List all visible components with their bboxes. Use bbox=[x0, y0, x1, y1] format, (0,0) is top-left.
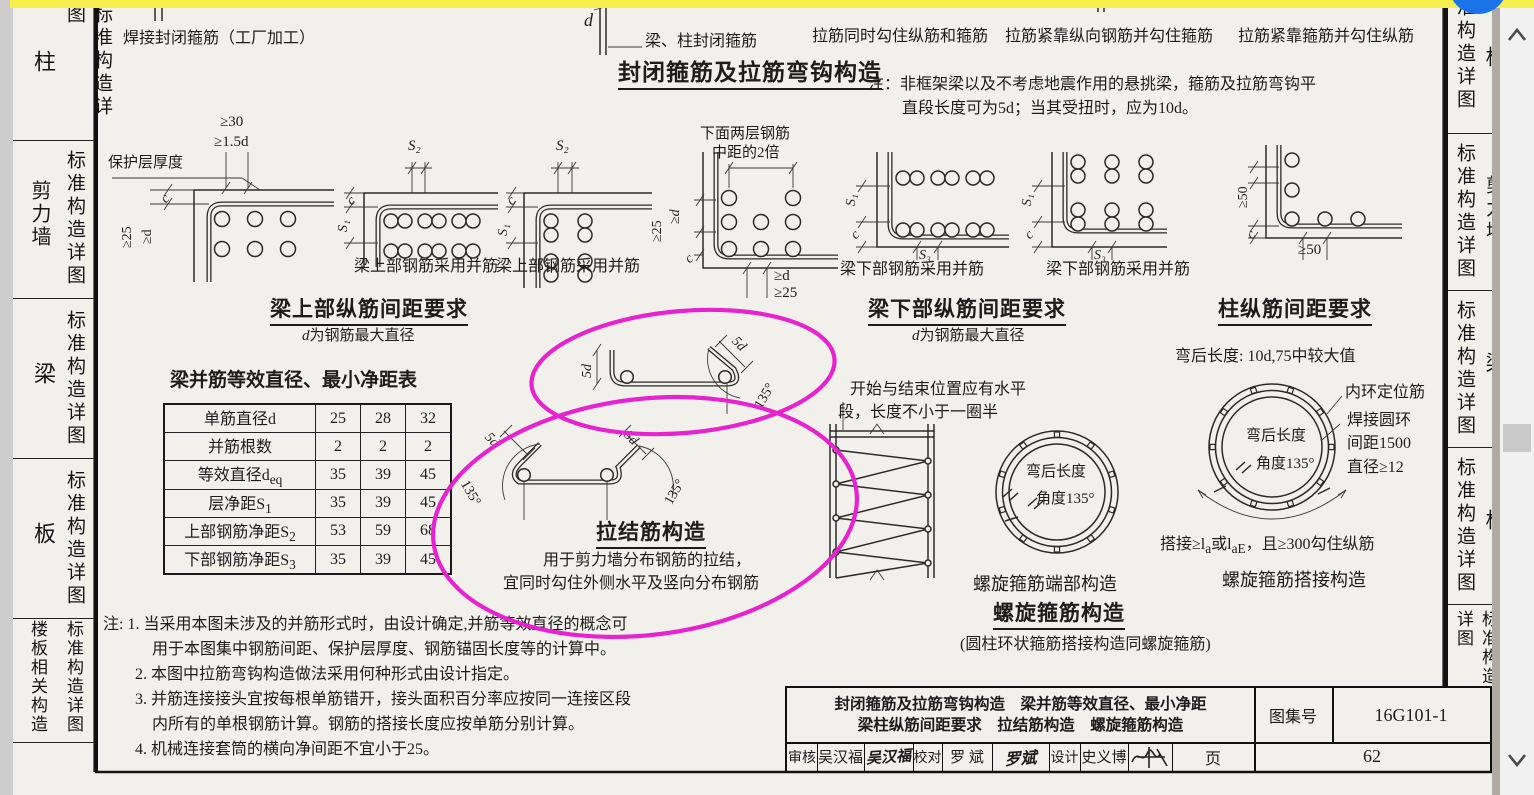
sidebar-category: 板 bbox=[27, 522, 59, 548]
sidebar-label: 标准构造详图 bbox=[1451, 457, 1478, 595]
spiral-end-caption: 螺旋箍筋端部构造 bbox=[973, 574, 1117, 594]
section-title-beam-bottom: 梁下部纵筋间距要求 bbox=[868, 298, 1066, 326]
d-italic: d bbox=[912, 328, 920, 344]
page-number: 62 bbox=[1254, 742, 1490, 771]
tie-title: 拉结筋构造 bbox=[596, 521, 706, 549]
designer-label: 设计 bbox=[1049, 742, 1080, 771]
document-viewer: 焊接封闭箍筋（工厂加工） d 梁、柱封闭箍筋 拉筋同时勾住纵筋和箍筋 拉筋紧靠纵… bbox=[0, 0, 1534, 795]
spiral-subtitle: (圆柱环状箍筋搭接构造同螺旋箍筋) bbox=[960, 636, 1211, 654]
spiral-start-note-2: 段，长度不小于一圈半 bbox=[838, 404, 998, 422]
reviewer-signature: 吴汉福 bbox=[863, 740, 914, 772]
section-subtitle: d为钢筋最大直径 bbox=[912, 328, 1025, 345]
checker-name: 罗 斌 bbox=[942, 742, 992, 771]
designer-signature bbox=[1128, 742, 1172, 771]
sidebar-item-column: 柱 标准构造详图 bbox=[13, 0, 95, 141]
dim-label: ≥25 bbox=[650, 220, 666, 242]
weld-stirrup-label: 焊接封闭箍筋（工厂加工） bbox=[123, 30, 315, 48]
ring-bend-label: 弯后长度 bbox=[1246, 428, 1306, 445]
sidebar-label: 标准构造详图 bbox=[61, 470, 88, 608]
note-line: 内所有的单根钢筋计算。钢筋的搭接长度应按单筋分别计算。 bbox=[152, 716, 584, 734]
d-italic: d bbox=[302, 328, 310, 344]
spiral-start-note-1: 开始与结束位置应有水平 bbox=[850, 381, 1026, 399]
sidebar-label: 标准构造详图 bbox=[61, 310, 88, 448]
sidebar-label: 标准构造详图 bbox=[61, 150, 88, 288]
sidebar-category: 梁 bbox=[27, 362, 59, 388]
diagram-caption: 梁下部钢筋采用并筋 bbox=[1046, 261, 1190, 279]
ring-note-3: 间距1500 bbox=[1347, 435, 1411, 453]
table-row: 单筋直径d252832 bbox=[164, 404, 451, 433]
dim-label: 下面两层钢筋 bbox=[700, 126, 790, 143]
table-row: 上部钢筋净距S2535968 bbox=[164, 517, 451, 545]
bend-rule-label: 弯后长度: 10d,75中较大值 bbox=[1175, 348, 1355, 366]
table-row: 等效直径deq353945 bbox=[164, 461, 451, 489]
sidebar-category: 板 bbox=[1480, 509, 1492, 534]
dim-d-label: d bbox=[584, 10, 593, 30]
dim-label: S₁ bbox=[844, 194, 860, 206]
section-subtitle: d为钢筋最大直径 bbox=[302, 328, 415, 345]
tie-subtitle-1: 用于剪力墙分布钢筋的拉结， bbox=[543, 552, 751, 570]
dim-label: ≥d bbox=[140, 229, 156, 244]
sheet-title-line1: 封闭箍筋及拉筋弯钩构造 梁并筋等效直径、最小净距 bbox=[834, 694, 1206, 715]
table-row: 层净距S1353945 bbox=[164, 489, 451, 517]
chevron-up-icon[interactable] bbox=[1509, 30, 1525, 40]
chevron-down-icon[interactable] bbox=[1509, 755, 1525, 765]
highlight-strip bbox=[10, 0, 1534, 8]
dim-label: 5d bbox=[580, 364, 596, 378]
window-edge-strip bbox=[0, 0, 13, 795]
sidebar-item: 标准构造详图 bbox=[1447, 604, 1492, 686]
subtitle-rest: 为钢筋最大直径 bbox=[920, 328, 1025, 344]
dim-label: S₁ bbox=[496, 224, 512, 236]
subtitle-rest: 为钢筋最大直径 bbox=[310, 328, 415, 344]
sidebar-category: 柱 bbox=[27, 50, 59, 76]
sheet-title-line2: 梁柱纵筋间距要求 拉结筋构造 螺旋箍筋构造 bbox=[858, 715, 1184, 736]
tie-near-stirrup-label: 拉筋紧靠箍筋并勾住纵筋 bbox=[1238, 28, 1414, 46]
sidebar-label: 标准构造详图 bbox=[1451, 143, 1478, 281]
diagram-caption: 梁上部钢筋采用并筋 bbox=[496, 258, 640, 276]
lap-ring-positioning-bars bbox=[1210, 387, 1334, 507]
atlas-number: 16G101-1 bbox=[1332, 688, 1490, 742]
main-heading: 封闭箍筋及拉筋弯钩构造 bbox=[618, 60, 882, 90]
dim-label: 中距的2倍 bbox=[712, 145, 780, 162]
dim-label: S₁ bbox=[336, 220, 352, 232]
dim-label: S₁ bbox=[1020, 194, 1036, 206]
dim-label: ≥d bbox=[774, 268, 790, 285]
dim-label: ≥25 bbox=[774, 285, 797, 302]
spiral-lap-caption: 螺旋箍筋搭接构造 bbox=[1222, 570, 1366, 590]
dim-label: ≥25 bbox=[120, 226, 136, 248]
left-index-strip: 柱 标准构造详图 剪力墙 标准构造详图 梁 标准构造详图 板 标准构造详图 楼板… bbox=[13, 0, 98, 772]
sidebar-category: 梁 bbox=[1480, 352, 1492, 377]
spiral-title: 螺旋箍筋构造 bbox=[993, 602, 1125, 630]
diagram-caption: 梁上部钢筋采用并筋 bbox=[354, 258, 498, 276]
dim-label: ≥d bbox=[668, 209, 684, 224]
heading-note-2: 直段长度可为5d；当其受扭时，应为10d。 bbox=[902, 100, 1198, 118]
reviewer-label: 审核 bbox=[787, 742, 817, 771]
lap-rule-label: 搭接≥la或laE，且≥300勾住纵筋 bbox=[1160, 536, 1374, 557]
equivalent-diameter-table: 单筋直径d252832 并筋根数222 等效直径deq353945 层净距S13… bbox=[163, 403, 452, 575]
note-line: 3. 并筋连接接头宜按每根单筋错开，接头面积百分率应按同一连接区段 bbox=[135, 691, 631, 709]
tie-hook-both-label: 拉筋同时勾住纵筋和箍筋 bbox=[812, 28, 988, 46]
table-row: 并筋根数222 bbox=[164, 433, 451, 461]
heading-note-1: 注：非框架梁以及不考虑地震作用的悬挑梁，箍筋及拉筋弯钩平 bbox=[868, 76, 1316, 94]
ring-bend-label: 弯后长度 bbox=[1026, 464, 1086, 481]
note-line: 2. 本图中拉筋弯钩构造做法采用何种形式由设计指定。 bbox=[135, 666, 519, 684]
section-title-column: 柱纵筋间距要求 bbox=[1218, 298, 1372, 326]
sidebar-category: 楼板相关构造 bbox=[25, 620, 50, 734]
signature-scribble bbox=[1129, 744, 1171, 770]
sidebar-category: 剪力墙 bbox=[1480, 175, 1492, 244]
tie-near-long-label: 拉筋紧靠纵向钢筋并勾住箍筋 bbox=[1005, 28, 1213, 46]
designer-name: 史义博 bbox=[1080, 742, 1128, 771]
dim-label: ≥50 bbox=[1298, 242, 1321, 259]
sidebar-item-shearwall: 剪力墙 标准构造详图 bbox=[13, 140, 95, 299]
sidebar-label: 标准构造详图 bbox=[1451, 0, 1478, 112]
ring-note-2: 焊接圆环 bbox=[1347, 412, 1411, 430]
dim-label: ≥50 bbox=[1236, 186, 1252, 208]
ring-note-4: 直径≥12 bbox=[1347, 459, 1404, 477]
title-block: 封闭箍筋及拉筋弯钩构造 梁并筋等效直径、最小净距 梁柱纵筋间距要求 拉结筋构造 … bbox=[785, 686, 1492, 773]
sidebar-category: 柱 bbox=[1480, 46, 1492, 71]
sidebar-label: 标准构造详图 bbox=[1451, 610, 1492, 686]
sidebar-item-floor-related: 楼板相关构造 标准构造详图 bbox=[13, 618, 95, 743]
sidebar-item: 标准构造详图 柱 bbox=[1447, 0, 1492, 134]
beam-col-stirrup-label: 梁、柱封闭箍筋 bbox=[645, 33, 757, 51]
dim-label: ≥30 bbox=[220, 114, 243, 131]
ring-angle-label: 角度135° bbox=[1036, 491, 1095, 508]
scrollbar-icons bbox=[1500, 0, 1534, 795]
page-frame-line bbox=[1444, 0, 1448, 686]
page-label: 页 bbox=[1172, 742, 1254, 771]
right-index-strip: 标准构造详图 柱 标准构造详图 剪力墙 标准构造详图 梁 标准构造详图 板 标准… bbox=[1447, 0, 1492, 686]
sidebar-label: 标准构造详图 bbox=[61, 620, 86, 734]
sidebar-item-slab: 板 标准构造详图 bbox=[13, 458, 95, 619]
sidebar-item-beam: 梁 标准构造详图 bbox=[13, 298, 95, 459]
note-line: 用于本图集中钢筋间距、保护层厚度、钢筋锚固长度等的计算中。 bbox=[152, 641, 616, 659]
checker-signature: 罗斌 bbox=[991, 740, 1050, 773]
sidebar-label: 标准构造详图 bbox=[61, 4, 115, 140]
cover-label: 保护层厚度 bbox=[108, 155, 183, 172]
sidebar-category: 剪力墙 bbox=[25, 180, 54, 249]
checker-label: 校对 bbox=[913, 742, 942, 771]
sidebar-label: 标准构造详图 bbox=[1451, 300, 1478, 438]
sidebar-item: 标准构造详图 剪力墙 bbox=[1447, 133, 1492, 291]
dim-label: ≥1.5d bbox=[214, 134, 248, 151]
dim-label: S₂ bbox=[556, 138, 569, 155]
sidebar-item: 标准构造详图 梁 bbox=[1447, 290, 1492, 448]
diagram-caption: 梁下部钢筋采用并筋 bbox=[840, 261, 984, 279]
sheet-title: 封闭箍筋及拉筋弯钩构造 梁并筋等效直径、最小净距 梁柱纵筋间距要求 拉结筋构造 … bbox=[787, 688, 1254, 742]
section-title-beam-top: 梁上部纵筋间距要求 bbox=[270, 298, 468, 326]
dim-label: S₂ bbox=[408, 138, 421, 155]
sidebar-item: 标准构造详图 板 bbox=[1447, 447, 1492, 605]
tie-subtitle-2: 宜同时勾住外侧水平及竖向分布钢筋 bbox=[503, 575, 759, 593]
ring-angle-label: 角度135° bbox=[1256, 456, 1315, 473]
ring-note-1: 内环定位筋 bbox=[1345, 384, 1425, 402]
note-line: 注: 1. 当采用本图未涉及的并筋形式时，由设计确定,并筋等效直径的概念可 bbox=[103, 616, 627, 634]
page-edge-shadow bbox=[1492, 0, 1500, 795]
atlas-label: 图集号 bbox=[1254, 688, 1332, 742]
reviewer-name: 吴汉福 bbox=[817, 742, 864, 771]
note-line: 4. 机械连接套筒的横向净间距不宜小于25。 bbox=[135, 741, 439, 759]
table-title: 梁并筋等效直径、最小净距表 bbox=[170, 370, 417, 391]
table-row: 下部钢筋净距S3353945 bbox=[164, 545, 451, 574]
